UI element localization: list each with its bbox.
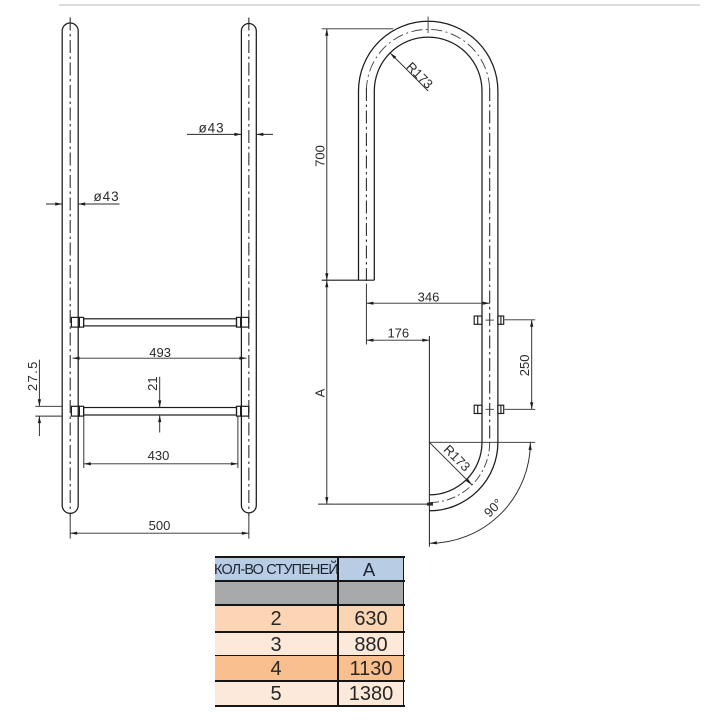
svg-text:ø43: ø43 <box>94 189 120 204</box>
svg-text:700: 700 <box>312 145 327 167</box>
svg-text:ø43: ø43 <box>199 121 225 136</box>
svg-text:27.5: 27.5 <box>25 362 40 392</box>
svg-text:21: 21 <box>145 376 160 390</box>
svg-text:493: 493 <box>149 345 171 360</box>
svg-text:250: 250 <box>517 355 532 377</box>
svg-text:R173: R173 <box>403 59 436 92</box>
svg-text:176: 176 <box>387 326 409 341</box>
svg-text:90°: 90° <box>481 496 506 521</box>
svg-text:346: 346 <box>418 289 440 304</box>
svg-text:430: 430 <box>148 448 170 463</box>
svg-text:500: 500 <box>149 518 171 533</box>
svg-text:A: A <box>312 388 327 397</box>
